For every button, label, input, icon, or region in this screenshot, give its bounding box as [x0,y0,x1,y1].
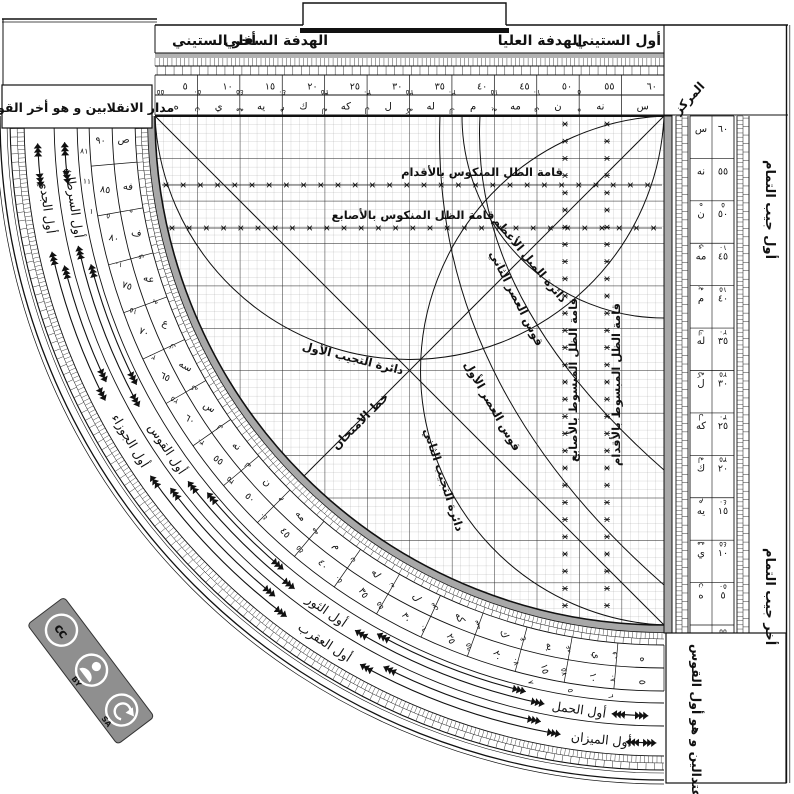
checker-tick [145,183,151,184]
checker-tick [557,622,558,628]
checker-tick [177,537,182,542]
checker-tick [21,187,28,188]
checker-tick [48,313,55,315]
ruler-counter-letter: ل [364,107,369,116]
checker-tick [379,549,382,554]
checker-tick [552,746,553,753]
cosine-counter: ١٥ [719,286,727,295]
checker-tick [565,624,566,630]
checker-tick [598,635,599,641]
checker-tick [21,236,28,237]
checker-tick [20,228,27,229]
checker-tick [80,391,86,394]
minor-band-mark: ١١ [83,176,92,186]
checker-tick [554,754,555,761]
checker-tick [524,614,526,620]
cosine-counter-letter: ه [699,201,703,210]
checker-tick [156,260,162,262]
checker-tick [369,685,372,691]
checker-tick [317,510,321,515]
checker-tick [478,729,480,736]
checker-tick [135,484,141,488]
checker-tick [387,695,390,701]
checker-tick [560,748,561,755]
checker-tick [468,595,470,601]
ruler-counter: ٥٥ [157,88,165,97]
checker-tick [179,540,184,545]
checker-tick [612,761,613,768]
checker-tick [480,737,482,744]
checker-tick [480,600,482,606]
degree-number: ٥ [636,680,647,686]
checker-tick [346,673,349,679]
checker-tick [143,162,149,163]
checker-tick [252,444,257,448]
checker-tick [545,752,546,759]
checker-tick [422,574,425,579]
checker-tick [490,732,492,739]
checker-tick [484,601,486,607]
badge-plate [27,597,154,744]
ruler-letter: مه [510,102,521,113]
checker-tick [400,708,403,714]
degree-number: ٤٠ [315,558,330,573]
checker-tick [430,713,433,720]
checker-tick [377,698,380,704]
checker-tick [263,457,268,461]
checker-tick [334,517,338,522]
checker-tick [452,595,454,600]
checker-tick [585,751,586,758]
checker-tick [545,619,546,625]
checker-tick [160,528,165,532]
checker-tick [85,417,91,420]
checker-tick [314,654,318,660]
checker-tick [500,607,502,613]
checker-tick [155,236,161,237]
checker-tick [81,410,87,413]
checker-tick [66,360,72,363]
checker-tick [175,300,181,302]
checker-tick [615,754,616,761]
checker-tick [393,558,396,563]
checker-tick [25,216,32,217]
checker-tick [134,495,140,499]
checker-tick [331,515,335,520]
ruler-letter: م [470,102,476,113]
checker-tick [29,241,36,242]
checker-tick [19,170,26,171]
checker-tick [347,682,350,688]
degree-number: ١٠ [587,672,599,684]
quadrant-drawing: ٦٠س٥٥نه٥٠ن٥ه٤٥مه١٠ي٤٠م١٥يه٣٥له٢٠ك٣٠ل٢٥كه… [0,0,794,794]
checker-tick [279,466,283,470]
checker-tick [174,296,180,298]
checker-tick [315,501,319,505]
checker-tick [41,289,48,291]
cosine-counter-letter: ك [698,328,704,337]
upper-sight-label: الهدفة العليا [498,33,583,49]
checker-tick [147,501,153,505]
checker-tick [191,553,196,558]
checker-tick [282,469,286,473]
checker-tick [382,551,385,556]
checker-tick [531,742,532,749]
checker-tick [124,482,130,486]
checker-tick [462,724,464,731]
checker-tick [236,596,241,601]
checker-tick [512,745,514,752]
checker-tick [408,711,411,717]
checker-tick [186,327,191,329]
checker-tick [414,706,417,712]
checker-tick [151,216,157,217]
minor-band-mark: ٨١ [80,146,89,155]
checker-tick [461,592,463,598]
checker-tick [393,705,396,711]
checker-tick [203,565,208,570]
cosine-letter: نه [697,166,705,177]
zodiac-outer-label: أول الميزان [570,728,632,751]
checker-tick [553,621,554,627]
checker-tick [69,368,75,371]
checker-tick [48,333,55,335]
ruler-letter: ن [554,102,561,113]
checker-tick [579,757,580,764]
checker-tick [190,334,195,337]
degree-number: ٩٠ [95,135,106,146]
checker-tick [146,220,152,221]
degree-letter: ي [590,650,602,659]
checker-tick [222,404,227,407]
checker-tick [218,589,223,594]
checker-tick [21,191,28,192]
checker-tick [358,535,362,540]
checker-tick [220,389,225,392]
checker-tick [171,531,176,536]
checker-tick [384,693,387,699]
checker-tick [361,537,364,542]
checker-tick [23,245,30,246]
degree-counter-letter: ف [610,651,620,659]
checker-tick [68,364,74,367]
checker-tick [160,518,165,522]
checker-tick [532,616,534,622]
checker-tick [242,431,247,435]
checker-tick [573,750,574,757]
ruler-number: ٢٠ [307,82,317,93]
checker-tick [63,353,70,356]
checker-tick [523,620,525,626]
zodiac-arrow [64,266,106,383]
checker-tick [492,604,494,610]
checker-tick [178,308,184,310]
ruler-counter-letter: م [280,107,284,116]
checker-tick [454,721,456,728]
checker-tick [328,663,332,669]
degree-letter: ص [117,134,130,146]
degree-counter-letter: كه [188,383,199,395]
checker-tick [16,203,23,204]
checker-tick [300,645,304,651]
checker-tick [611,754,612,761]
checker-tick [142,495,148,499]
checker-tick [606,753,607,760]
ruler-number: ١٥ [265,82,275,93]
degree-letter: يه [543,641,556,652]
checker-tick [129,488,135,492]
checker-tick [434,580,437,585]
checker-tick [99,428,105,431]
extended-shadow-digits-label: قامة الظل المبسوط بالأصابع [566,298,581,462]
checker-tick [303,490,307,494]
checker-tick [310,505,314,509]
checker-tick [272,625,276,631]
minor-band-mark: ١ [89,207,94,217]
checker-tick [194,556,199,561]
degree-number: ٣٠ [399,611,413,625]
checker-tick [125,471,131,475]
checker-tick [74,379,80,382]
checker-tick [385,701,388,707]
checker-tick [224,595,229,600]
checker-tick [239,599,244,604]
checker-tick [459,598,461,604]
checker-tick [446,719,448,726]
checker-tick [445,586,448,591]
checker-tick [361,681,364,687]
checker-tick [233,593,238,598]
checker-tick [370,551,373,556]
degree-counter-letter: يه [150,298,159,308]
ruler-counter-letter: ي [534,107,540,116]
cosine-start-label: أول جيب التمام [762,160,779,259]
checker-tick [19,166,26,167]
checker-tick [368,542,371,547]
checker-tick [172,308,178,310]
checker-tick [458,723,460,730]
checker-tick [230,591,235,596]
checker-tick [144,174,150,175]
checker-tick [159,252,165,254]
checker-tick [154,232,160,233]
checker-tick [182,331,187,333]
degree-letter: ن [260,476,273,489]
checker-tick [356,541,359,546]
checker-tick [200,562,205,567]
ruler-counter: ٤٠ [278,88,286,97]
checker-tick [426,576,429,581]
checker-tick [265,450,270,454]
checker-tick [138,170,144,171]
checker-tick [449,587,451,592]
checker-tick [504,743,506,750]
checker-tick [200,572,205,577]
checker-tick [351,530,355,535]
checker-tick [40,309,47,311]
checker-tick [297,652,301,658]
checker-tick [89,410,95,413]
checker-tick [212,573,217,578]
zodiac-inner-label: أول الحمل [551,697,607,722]
checker-tick [152,220,158,221]
inverted-shadow-digits-label: قامة الظل المنكوس بالأصابع [332,208,495,223]
minor-band-mark: ٧ [526,679,536,685]
checker-tick [33,285,40,287]
checker-tick [74,395,80,398]
checker-tick [241,421,246,425]
checker-tick [380,691,383,697]
checker-tick [71,372,77,375]
cosine-counter-letter: ل [698,413,703,422]
degree-counter: ١٥ [128,306,138,317]
checker-tick [141,195,147,196]
degree-number: ٢٥ [443,632,457,646]
checker-tick [544,745,545,752]
checker-tick [222,393,227,396]
checker-tick [292,488,296,492]
ruler-number: ١٠ [223,82,233,93]
checker-tick [17,212,24,213]
checker-tick [252,434,257,438]
ruler-number: ٣٠ [392,82,402,93]
checker-tick [376,689,379,695]
checker-tick [328,512,332,517]
checker-tick [143,166,149,167]
checker-tick [396,560,399,565]
degree-letter: له [369,567,383,580]
checker-tick [212,583,217,588]
checker-tick [168,280,174,282]
cc-license-badge[interactable]: cc BY SA [27,597,154,744]
checker-tick [370,694,373,700]
checker-tick [535,743,536,750]
checker-tick [475,605,477,611]
degree-counter: ٧٥ [558,667,568,676]
inverted-shadow-feet-label: قامة الظل المنكوس بالأقدام [401,165,563,180]
checker-tick [21,183,28,184]
cosine-counter-letter: له [698,455,704,464]
checker-tick [93,432,99,435]
ruler-counter: ٢٥ [406,88,414,97]
checker-tick [286,635,290,641]
checker-tick [270,456,275,460]
checker-tick [185,546,190,551]
checker-tick [250,617,254,622]
degree-counter: ١٠ [114,259,124,270]
checker-tick [430,578,433,583]
checker-tick [404,564,407,569]
checker-tick [185,323,190,325]
checker-tick [548,626,549,632]
checker-tick [19,162,26,163]
checker-tick [602,753,603,760]
ruler-letter: ك [299,102,307,113]
checker-tick [50,317,57,319]
checker-tick [491,610,493,616]
checker-tick [194,566,199,571]
checker-tick [123,467,129,471]
checker-tick [249,431,254,435]
checker-tick [201,368,206,371]
checker-tick [218,386,223,389]
checker-tick [24,208,31,209]
checker-tick [29,236,36,237]
ruler-counter-letter: مه [236,107,244,116]
checker-tick [330,521,334,526]
checker-tick [201,357,206,360]
checker-tick [372,687,375,693]
checker-tick [429,584,432,589]
checker-tick [515,618,517,624]
checker-tick [392,564,395,569]
checker-tick [128,474,134,478]
checker-tick [262,447,267,451]
checker-tick [82,395,88,398]
sine-quadrant-diagram: ٦٠س٥٥نه٥٠ن٥ه٤٥مه١٠ي٤٠م١٥يه٣٥له٢٠ك٣٠ل٢٥كه… [0,0,794,794]
checker-tick [39,281,46,283]
checker-tick [395,698,398,704]
zodiac-arrow [188,481,295,589]
ruler-number: ٤٠ [477,82,487,93]
checker-tick [206,568,211,573]
checker-tick [269,623,273,629]
checker-tick [140,491,146,495]
checker-tick [188,331,193,333]
checker-tick [296,642,300,648]
checker-tick [147,195,153,196]
checker-tick [97,439,103,442]
checker-tick [194,342,199,345]
checker-tick [476,599,478,605]
checker-tick [310,652,314,658]
checker-tick [142,203,148,204]
checker-tick [422,710,425,716]
checker-tick [502,736,504,743]
checker-tick [215,576,220,581]
minor-band-mark: ٥ [566,688,576,693]
checker-tick [30,245,37,246]
checker-tick [357,680,360,686]
checker-tick [37,273,44,275]
checker-tick [403,702,406,708]
checker-tick [496,606,498,612]
checker-tick [276,637,280,643]
checker-tick [174,534,179,539]
cosine-counter: ٢٠ [719,328,727,337]
checker-tick [391,696,394,702]
checker-tick [496,741,498,748]
checker-tick [107,442,113,446]
checker-tick [372,545,375,550]
checker-tick [337,520,341,525]
checker-tick [303,647,307,653]
checker-tick [285,472,289,476]
checker-tick [230,600,235,605]
checker-tick [73,376,79,379]
checker-tick [15,195,22,196]
checker-tick [42,293,49,295]
checker-tick [180,311,186,313]
ruler-counter: ٣٥ [321,88,329,97]
checker-tick [282,633,286,639]
checker-tick [150,505,156,509]
checker-tick [616,631,617,637]
checker-tick [110,461,116,465]
zodiac-arrow [383,667,540,722]
checker-tick [520,747,522,754]
checker-tick [341,522,345,527]
